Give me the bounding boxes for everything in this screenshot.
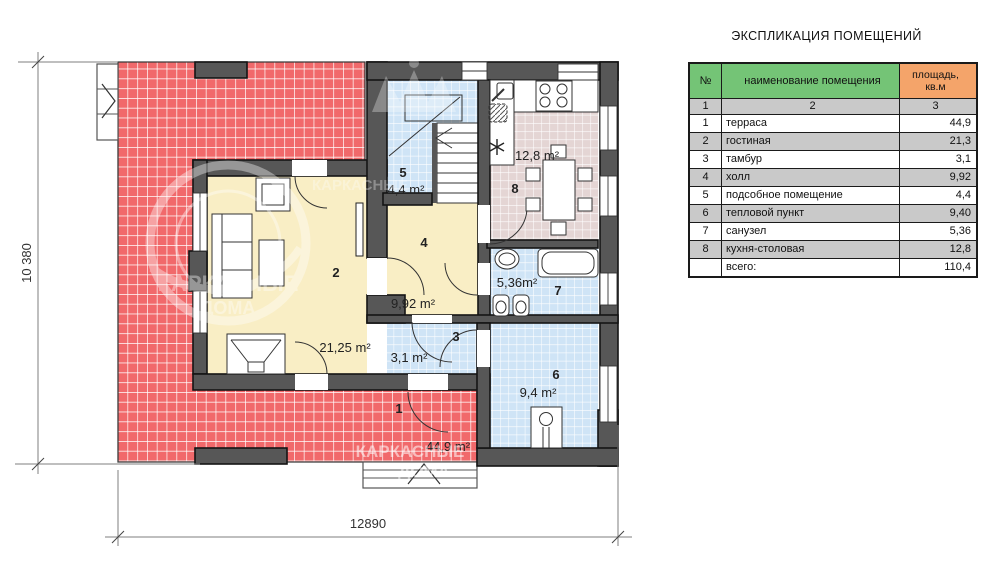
open-door-leaf xyxy=(356,203,363,256)
table-row: 4 холл 9,92 xyxy=(689,169,977,187)
entry-steps-left xyxy=(97,64,118,140)
vestibule-3-floor xyxy=(387,323,477,374)
row-area: 12,8 xyxy=(900,241,978,259)
dimension-height-label: 10 380 xyxy=(19,243,34,283)
room-area-label: 4,4 m² xyxy=(388,182,426,197)
window xyxy=(193,193,207,251)
terrace-pillar-bottom xyxy=(195,448,287,464)
explication-table: № наименование помещения площадь, кв.м 1… xyxy=(688,62,978,278)
window xyxy=(462,62,487,80)
room-area-label: 3,1 m² xyxy=(391,350,429,365)
row-name: тамбур xyxy=(722,151,900,169)
window xyxy=(600,273,617,305)
window xyxy=(600,366,617,422)
row-name: подсобное помещение xyxy=(722,187,900,205)
room-number: 5 xyxy=(399,165,406,180)
watermark-text: ДОМА xyxy=(937,330,989,349)
row-name: гостиная xyxy=(722,133,900,151)
table-row: 6 тепловой пункт 9,40 xyxy=(689,205,977,223)
armchair xyxy=(256,178,290,211)
bottom-right-wall xyxy=(477,448,618,466)
header-num: № xyxy=(689,63,722,99)
room-number: 4 xyxy=(420,235,428,250)
boiler xyxy=(531,407,562,448)
table-row: 3 тамбур 3,1 xyxy=(689,151,977,169)
row-num: 3 xyxy=(689,151,722,169)
row-area: 9,40 xyxy=(900,205,978,223)
bidet xyxy=(513,295,529,316)
table-total-row: всего: 110,4 xyxy=(689,259,977,278)
row-area: 3,1 xyxy=(900,151,978,169)
col-number: 3 xyxy=(900,99,978,115)
room-number: 8 xyxy=(511,181,518,196)
washbasin xyxy=(495,249,519,269)
row-area: 5,36 xyxy=(900,223,978,241)
row-name: санузел xyxy=(722,223,900,241)
col-number: 1 xyxy=(689,99,722,115)
room-number: 1 xyxy=(395,401,402,416)
table-row: 8 кухня-столовая 12,8 xyxy=(689,241,977,259)
header-name: наименование помещения xyxy=(722,63,900,99)
row-area: 44,9 xyxy=(900,115,978,133)
row-num: 7 xyxy=(689,223,722,241)
row-area: 21,3 xyxy=(900,133,978,151)
room-area-label: 44,9 m² xyxy=(426,439,471,454)
room-area-label: 12,8 m² xyxy=(515,148,560,163)
total-num xyxy=(689,259,722,278)
window xyxy=(558,64,598,80)
terrace-pillar-top xyxy=(195,62,247,78)
entry-steps-bottom xyxy=(363,462,477,488)
stove xyxy=(536,81,572,111)
window-pier xyxy=(189,251,207,291)
toilet xyxy=(493,295,509,316)
row-num: 8 xyxy=(689,241,722,259)
row-area: 9,92 xyxy=(900,169,978,187)
header-area-line1: площадь, xyxy=(900,69,971,81)
hall-vestibule-wall xyxy=(367,315,618,323)
header-area: площадь, кв.м xyxy=(900,63,978,99)
room-area-label: 5,36m² xyxy=(497,275,538,290)
table-row: 5 подсобное помещение 4,4 xyxy=(689,187,977,205)
row-name: тепловой пункт xyxy=(722,205,900,223)
table-row: 1 терраса 44,9 xyxy=(689,115,977,133)
total-value: 110,4 xyxy=(900,259,978,278)
room-area-label: 21,25 m² xyxy=(319,340,371,355)
row-num: 4 xyxy=(689,169,722,187)
dimension-width-label: 12890 xyxy=(350,516,386,531)
room-number: 2 xyxy=(332,265,339,280)
row-num: 6 xyxy=(689,205,722,223)
window xyxy=(193,291,207,333)
living-room-top-wall xyxy=(193,160,387,176)
bathtub xyxy=(538,249,598,277)
fireplace xyxy=(227,334,285,374)
total-label: всего: xyxy=(722,259,900,278)
window xyxy=(600,176,617,216)
table-row: 2 гостиная 21,3 xyxy=(689,133,977,151)
left-wall-upper xyxy=(367,62,387,258)
room-area-label: 9,92 m² xyxy=(391,296,436,311)
room-number: 7 xyxy=(554,283,561,298)
header-area-line2: кв.м xyxy=(900,81,971,93)
row-num: 2 xyxy=(689,133,722,151)
row-name: терраса xyxy=(722,115,900,133)
explication-title: ЭКСПЛИКАЦИЯ ПОМЕЩЕНИЙ xyxy=(688,29,965,43)
row-name: кухня-столовая xyxy=(722,241,900,259)
row-name: холл xyxy=(722,169,900,187)
column-number-row: 1 2 3 xyxy=(689,99,977,115)
coffee-table xyxy=(259,240,284,286)
row-num: 5 xyxy=(689,187,722,205)
col-number: 2 xyxy=(722,99,900,115)
table-row: 7 санузел 5,36 xyxy=(689,223,977,241)
room-number: 3 xyxy=(452,329,459,344)
window xyxy=(600,106,617,150)
sofa xyxy=(212,214,252,298)
row-area: 4,4 xyxy=(900,187,978,205)
table-header-row: № наименование помещения площадь, кв.м xyxy=(689,63,977,99)
room-area-label: 9,4 m² xyxy=(520,385,558,400)
room-number: 6 xyxy=(552,367,559,382)
row-num: 1 xyxy=(689,115,722,133)
